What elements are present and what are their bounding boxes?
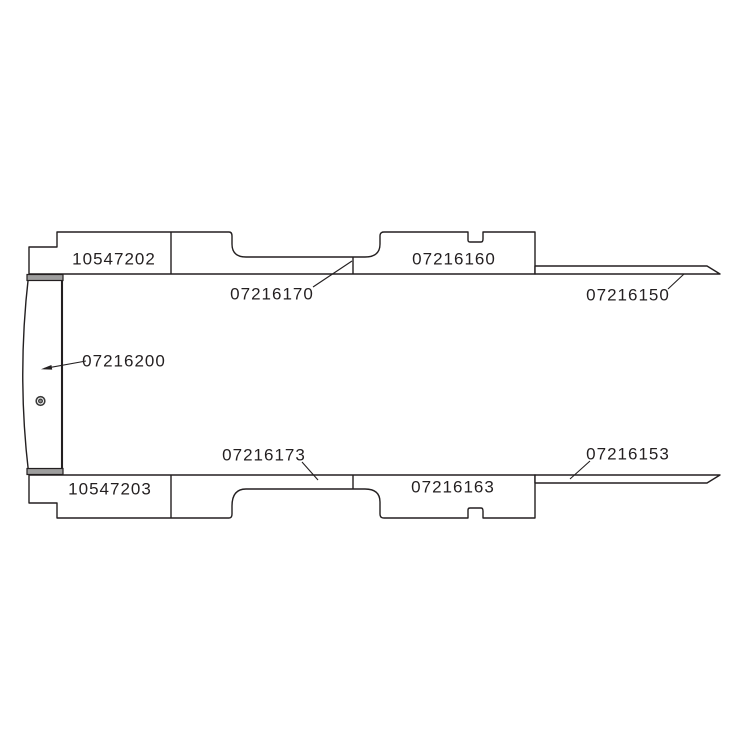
- part-label-10547203: 10547203: [68, 480, 152, 499]
- parts-diagram-canvas: 10547202 07216170 07216160 07216150 0721…: [0, 0, 750, 750]
- part-label-07216163: 07216163: [411, 478, 495, 497]
- end-panel-outer-curve: [23, 276, 29, 472]
- part-label-07216173: 07216173: [222, 446, 306, 465]
- bottom-thin-strip-shape: [535, 475, 720, 483]
- part-label-07216150: 07216150: [586, 286, 670, 305]
- grommet-center-icon: [39, 399, 43, 403]
- end-panel-top-seal-band: [27, 275, 63, 281]
- part-label-10547202: 10547202: [72, 250, 156, 269]
- top-thin-strip-shape: [535, 266, 720, 274]
- end-panel-bottom-seal-band: [27, 469, 63, 475]
- parts-diagram-page: 10547202 07216170 07216160 07216150 0721…: [0, 0, 750, 750]
- part-label-07216153: 07216153: [586, 445, 670, 464]
- part-label-07216170: 07216170: [230, 285, 314, 304]
- part-label-07216160: 07216160: [412, 250, 496, 269]
- leader-07216150: [668, 274, 684, 289]
- leader-07216200-arrowhead-icon: [41, 365, 52, 370]
- part-label-07216200: 07216200: [82, 352, 166, 371]
